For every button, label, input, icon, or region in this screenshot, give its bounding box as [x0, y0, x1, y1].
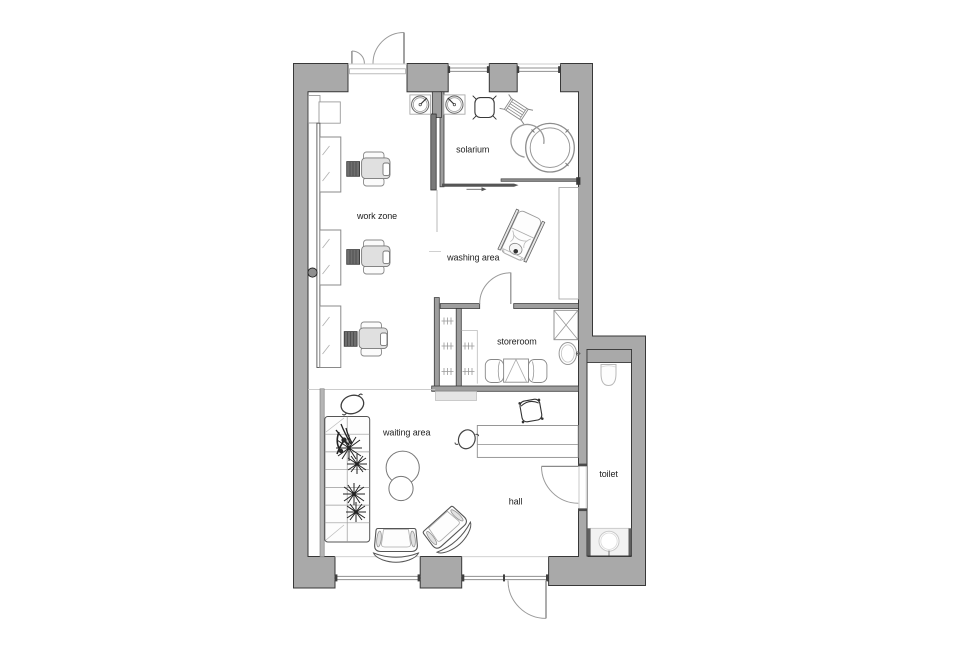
svg-text:storeroom: storeroom [497, 337, 537, 347]
svg-text:hall: hall [509, 496, 523, 506]
svg-text:waiting area: waiting area [382, 427, 430, 437]
svg-text:toilet: toilet [599, 469, 618, 479]
svg-text:work zone: work zone [356, 211, 397, 221]
svg-text:solarium: solarium [456, 144, 489, 154]
svg-text:washing area: washing area [446, 252, 499, 262]
